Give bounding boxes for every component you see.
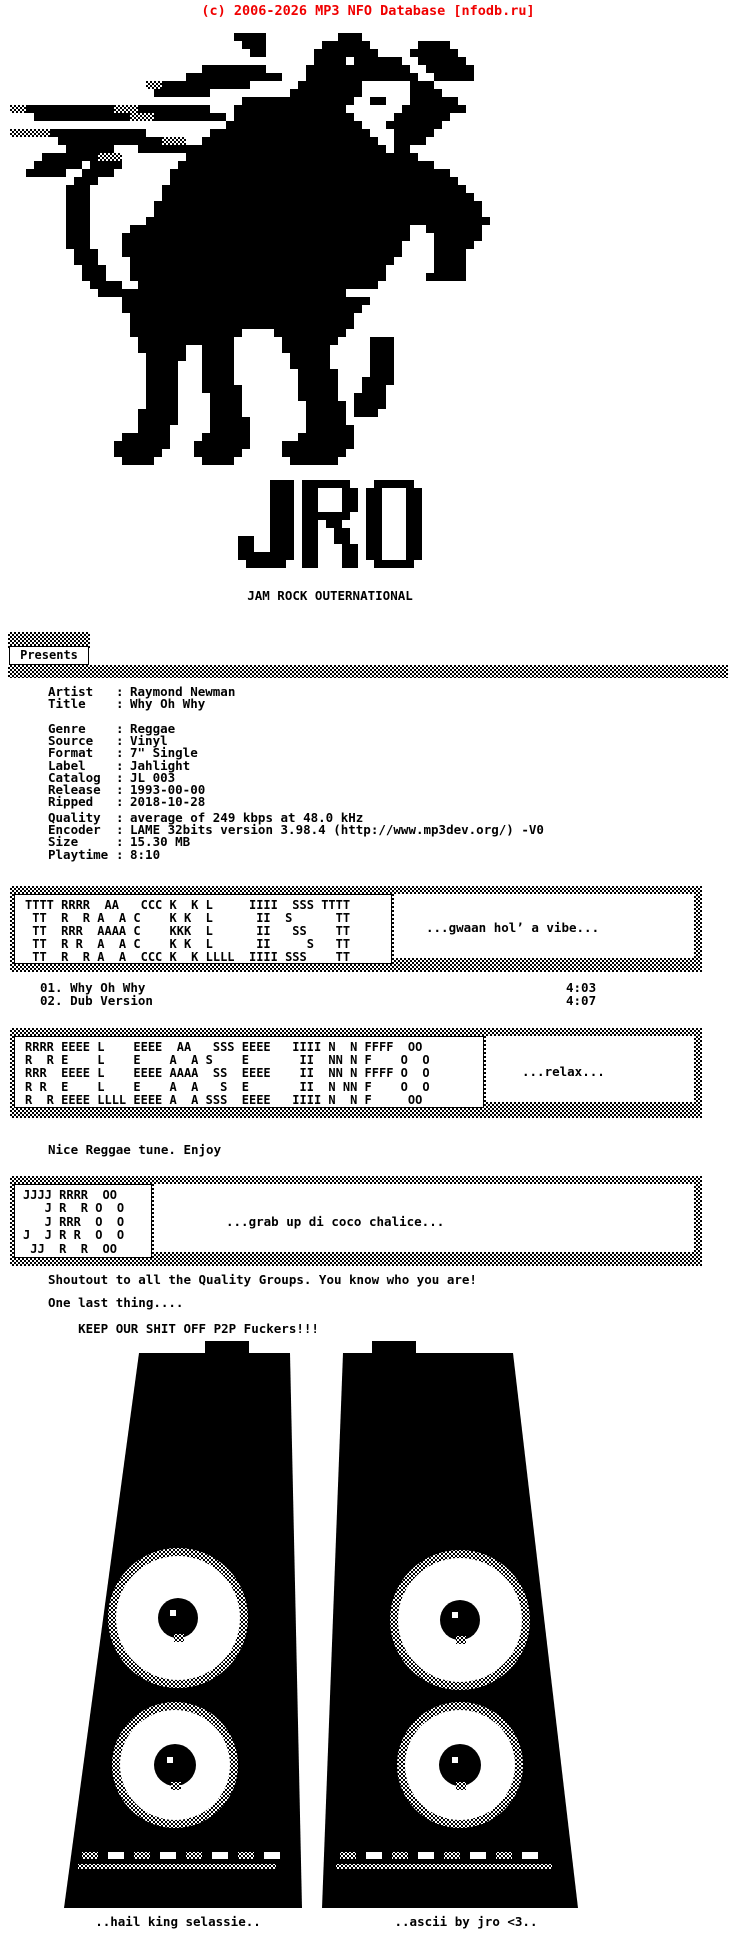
release-media-rows: Genre:ReggaeSource:VinylFormat:7" Single… — [48, 723, 205, 808]
footer-right-caption: ..ascii by jro <3.. — [366, 1914, 566, 1929]
tracklist-quote: ...gwaan hol’ a vibe... — [394, 894, 694, 958]
release-info-ascii: RRRR EEEE L EEEE AA SSS EEEE IIII N N FF… — [15, 1037, 483, 1107]
tracklist-banner: TTTT RRRR AA CCC K K L IIII SSS TTTT TT … — [10, 886, 702, 972]
nfo-page: (c) 2006-2026 MP3 NFO Database [nfodb.ru… — [0, 0, 736, 1944]
jro-ascii-box: JJJJ RRRR OO J R R O O J RRR O O J J R R… — [14, 1184, 152, 1258]
copyright-banner: (c) 2006-2026 MP3 NFO Database [nfodb.ru… — [0, 3, 736, 19]
jro-quote: ...grab up di coco chalice... — [154, 1184, 694, 1252]
warning-line-1: One last thing.... — [48, 1295, 183, 1310]
release-rip-rows: Quality:average of 249 kbps at 48.0 kHzE… — [48, 812, 544, 861]
track-row: 02. Dub Version4:07 — [40, 994, 700, 1007]
footer-left-caption: ..hail king selassie.. — [78, 1914, 278, 1929]
meta-row: Title:Why Oh Why — [48, 698, 235, 710]
presents-label: Presents — [9, 646, 89, 665]
jro-ascii: JJJJ RRRR OO J R R O O J RRR O O J J R R… — [15, 1185, 151, 1256]
meta-row: Ripped:2018-10-28 — [48, 796, 205, 808]
release-identity-rows: Artist:Raymond NewmanTitle:Why Oh Why — [48, 686, 235, 710]
presents-divider-bar — [8, 665, 728, 678]
release-info-ascii-box: RRRR EEEE L EEEE AA SSS EEEE IIII N N FF… — [14, 1036, 484, 1108]
track-row: 01. Why Oh Why4:03 — [40, 981, 700, 994]
warning-lines: One last thing.... KEEP OUR SHIT OFF P2P… — [48, 1296, 319, 1335]
jro-logo-art — [238, 480, 422, 568]
track-list: 01. Why Oh Why4:0302. Dub Version4:07 — [40, 981, 700, 1008]
warning-line-2: KEEP OUR SHIT OFF P2P Fuckers!!! — [78, 1321, 319, 1336]
tracklist-ascii: TTTT RRRR AA CCC K K L IIII SSS TTTT TT … — [15, 895, 391, 964]
speakers-ascii-art — [55, 1335, 600, 1920]
group-name: JAM ROCK OUTERNATIONAL — [228, 588, 432, 603]
lion-of-judah-ascii-art — [10, 33, 490, 465]
release-info-quote: ...relax... — [486, 1036, 694, 1102]
release-info-banner: RRRR EEEE L EEEE AA SSS EEEE IIII N N FF… — [10, 1028, 702, 1118]
jro-banner: JJJJ RRRR OO J R R O O J RRR O O J J R R… — [10, 1176, 702, 1266]
release-note: Nice Reggae tune. Enjoy — [48, 1142, 221, 1157]
shoutout-line: Shoutout to all the Quality Groups. You … — [48, 1272, 477, 1287]
meta-row: Playtime:8:10 — [48, 849, 544, 861]
tracklist-ascii-box: TTTT RRRR AA CCC K K L IIII SSS TTTT TT … — [14, 894, 392, 964]
